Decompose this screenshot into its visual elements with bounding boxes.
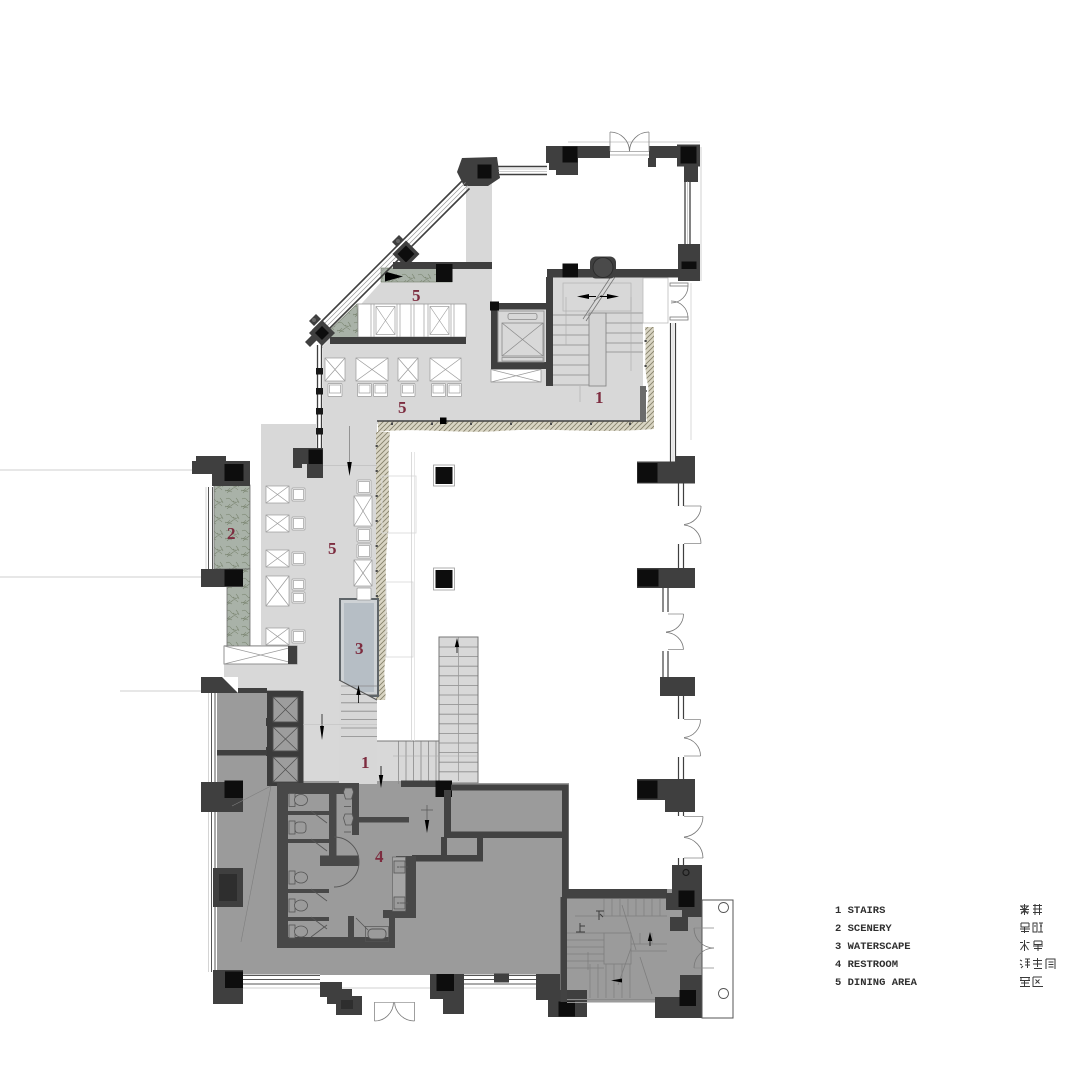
svg-text:5 DINING AREA: 5 DINING AREA: [835, 977, 918, 989]
svg-text:3 WATERSCAPE: 3 WATERSCAPE: [835, 941, 911, 953]
svg-text:4 RESTROOM: 4 RESTROOM: [835, 959, 898, 971]
svg-text:1 STAIRS: 1 STAIRS: [835, 905, 885, 917]
svg-text:4: 4: [375, 847, 384, 866]
svg-text:5: 5: [398, 398, 407, 417]
svg-text:3: 3: [355, 639, 364, 658]
svg-text:2 SCENERY: 2 SCENERY: [835, 923, 892, 935]
svg-text:1: 1: [361, 753, 370, 772]
svg-text:5: 5: [328, 539, 337, 558]
svg-text:5: 5: [412, 286, 421, 305]
svg-text:2: 2: [227, 524, 236, 543]
svg-text:1: 1: [595, 388, 604, 407]
